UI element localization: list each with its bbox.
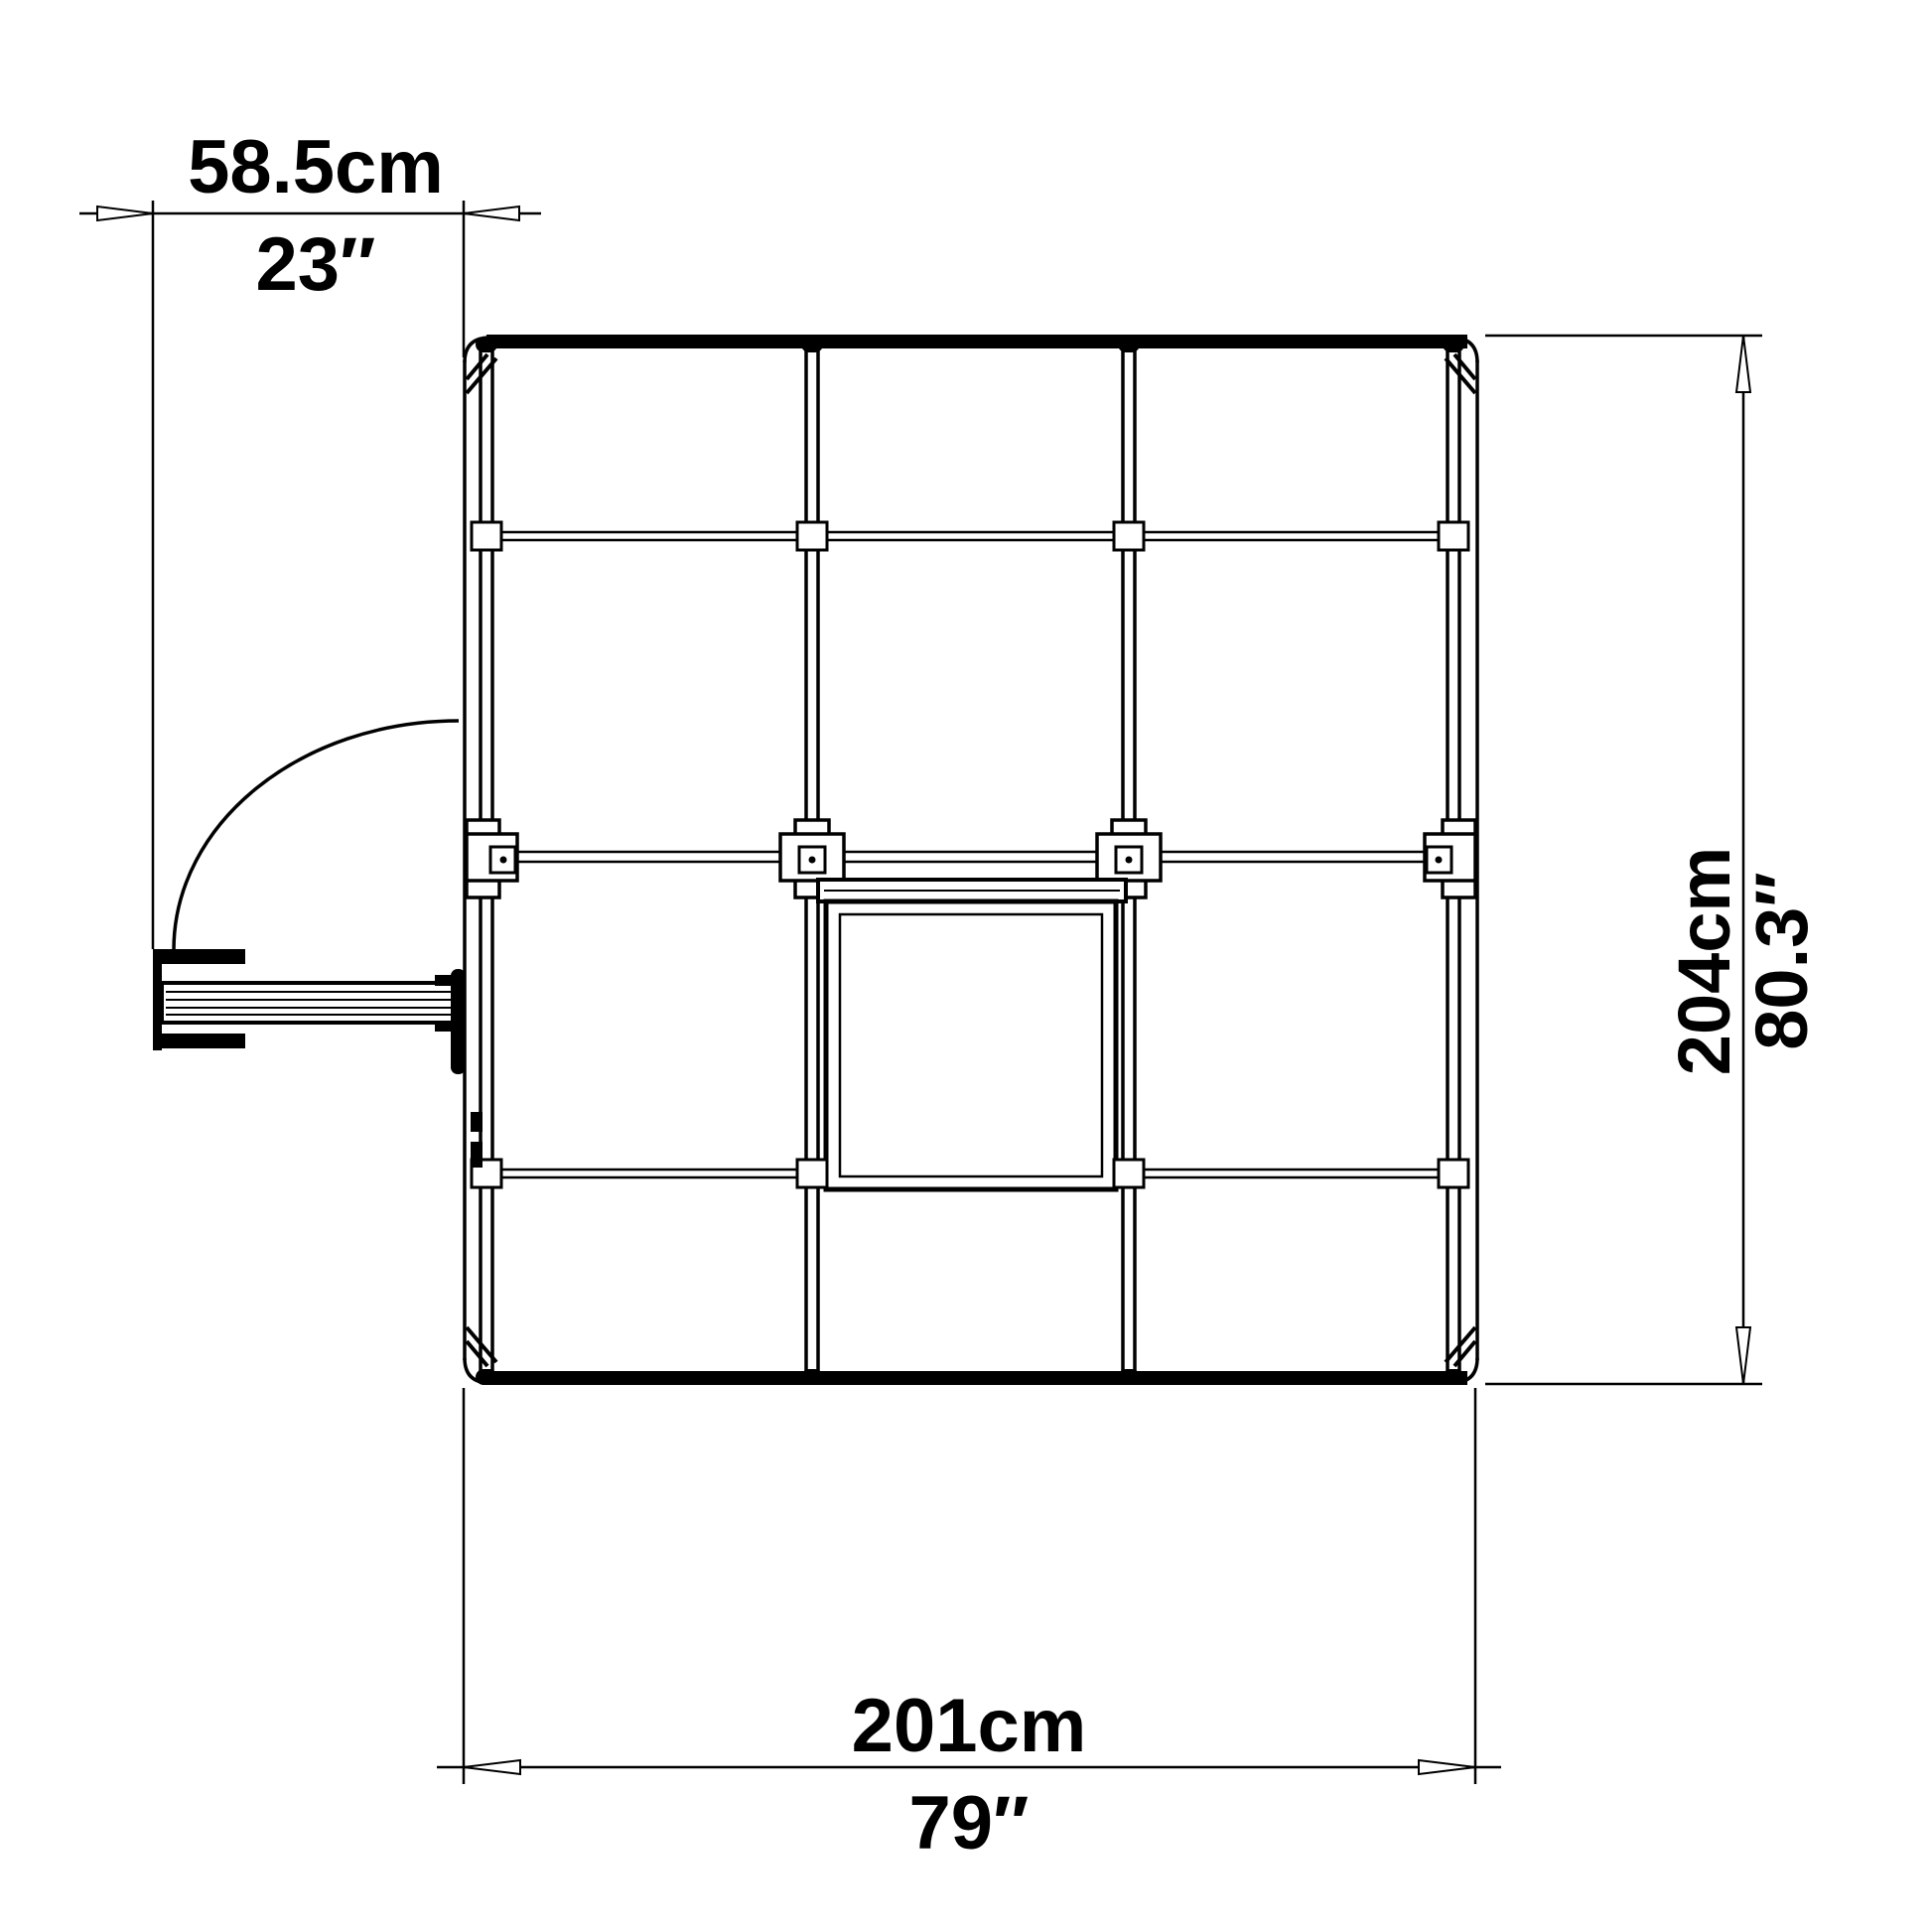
door-width-imperial-label: 23″ [256,222,376,307]
overall-width-metric-label: 201cm [852,1684,1087,1768]
overall-depth-imperial-label: 80.3″ [1740,872,1823,1049]
frame-top-bar [486,335,1467,348]
roof-window-outer [826,901,1116,1189]
overall-depth-metric-label: 204cm [1663,847,1745,1075]
greenhouse-top-view-drawing: 58.5cm 23″ 201cm 79″ 204cm 80.3″ [0,0,1932,1932]
door-width-metric-label: 58.5cm [188,125,444,209]
overall-width-imperial-label: 79″ [909,1781,1030,1865]
frame-bottom-bar [486,1371,1467,1385]
door-leaf [162,983,459,1023]
roof-window [818,880,1126,1189]
